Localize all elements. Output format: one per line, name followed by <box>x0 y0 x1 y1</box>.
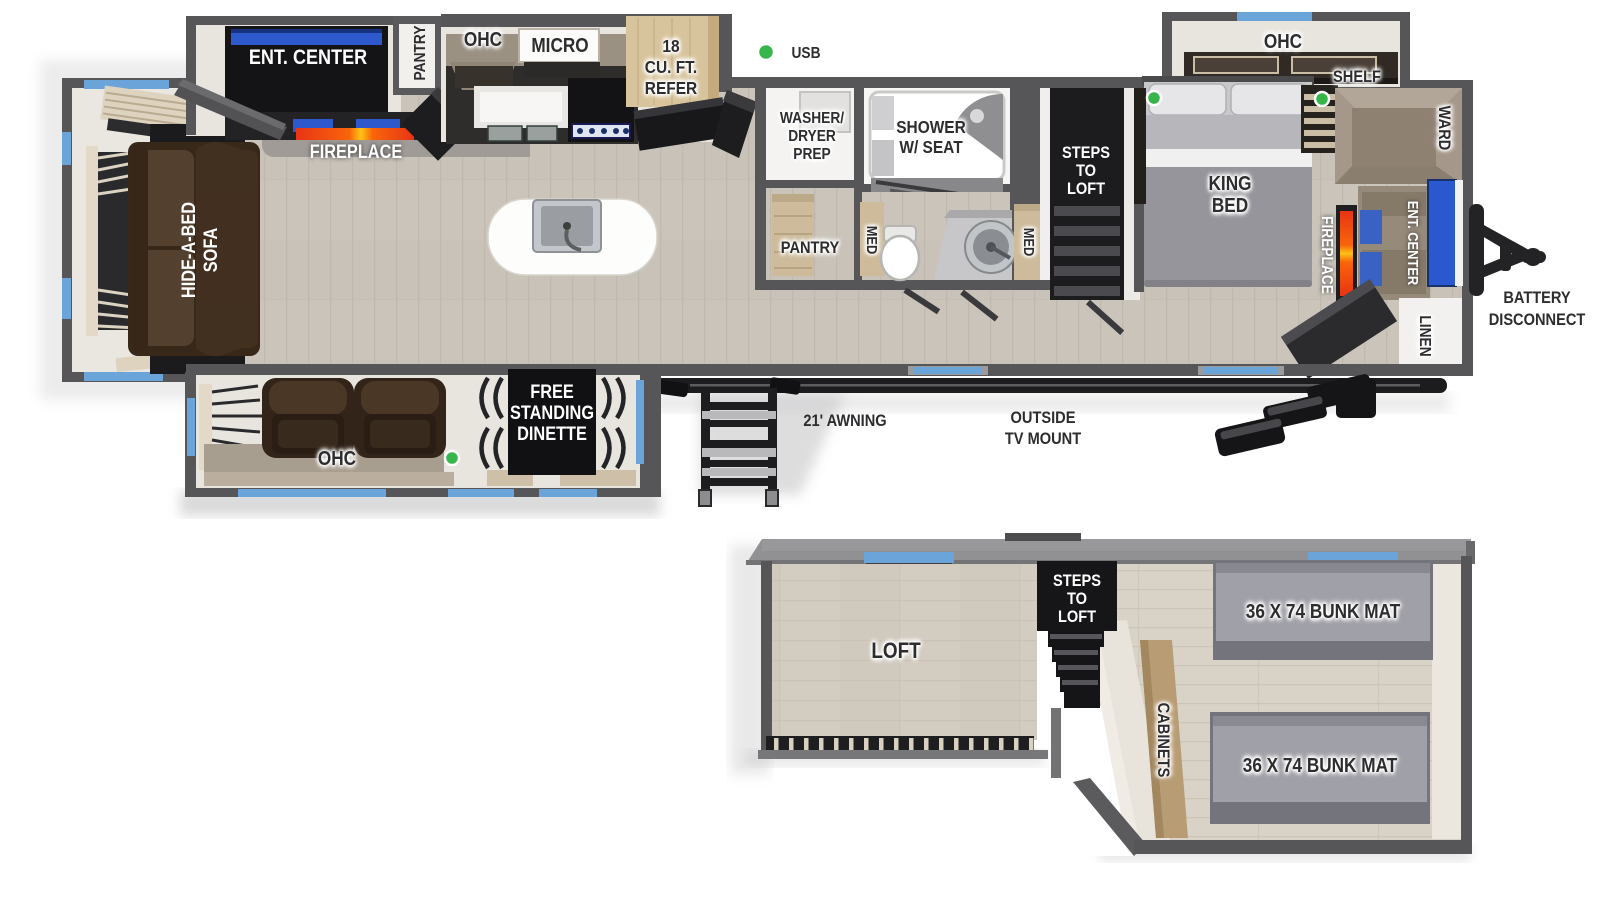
svg-text:FIREPLACE: FIREPLACE <box>1318 216 1336 294</box>
svg-text:MICRO: MICRO <box>531 34 588 57</box>
svg-text:21' AWNING: 21' AWNING <box>803 412 886 430</box>
svg-text:PANTRY: PANTRY <box>411 25 429 80</box>
svg-text:WARD: WARD <box>1435 106 1453 151</box>
svg-text:HIDE-A-BED: HIDE-A-BED <box>178 202 199 298</box>
svg-text:SHOWERW/ SEAT: SHOWERW/ SEAT <box>896 117 966 157</box>
svg-text:USB: USB <box>791 44 820 62</box>
svg-text:ENT. CENTER: ENT. CENTER <box>1405 201 1422 285</box>
svg-text:FIREPLACE: FIREPLACE <box>310 141 403 162</box>
svg-text:LINEN: LINEN <box>1416 315 1434 356</box>
svg-text:SHELF: SHELF <box>1333 68 1381 86</box>
svg-text:CABINETS: CABINETS <box>1154 703 1172 778</box>
svg-text:OHC: OHC <box>318 447 356 470</box>
svg-text:PANTRY: PANTRY <box>781 239 840 257</box>
svg-text:SOFA: SOFA <box>200 228 221 273</box>
svg-text:36 X 74 BUNK MAT: 36 X 74 BUNK MAT <box>1246 600 1401 623</box>
svg-text:MED: MED <box>864 226 881 255</box>
svg-text:ENT. CENTER: ENT. CENTER <box>249 46 367 70</box>
svg-text:KINGBED: KINGBED <box>1209 172 1252 217</box>
svg-text:LOFT: LOFT <box>871 639 921 664</box>
svg-text:MED: MED <box>1021 228 1038 257</box>
svg-text:OHC: OHC <box>1264 30 1302 53</box>
svg-text:36 X 74 BUNK MAT: 36 X 74 BUNK MAT <box>1243 754 1398 777</box>
svg-text:OHC: OHC <box>464 28 502 51</box>
